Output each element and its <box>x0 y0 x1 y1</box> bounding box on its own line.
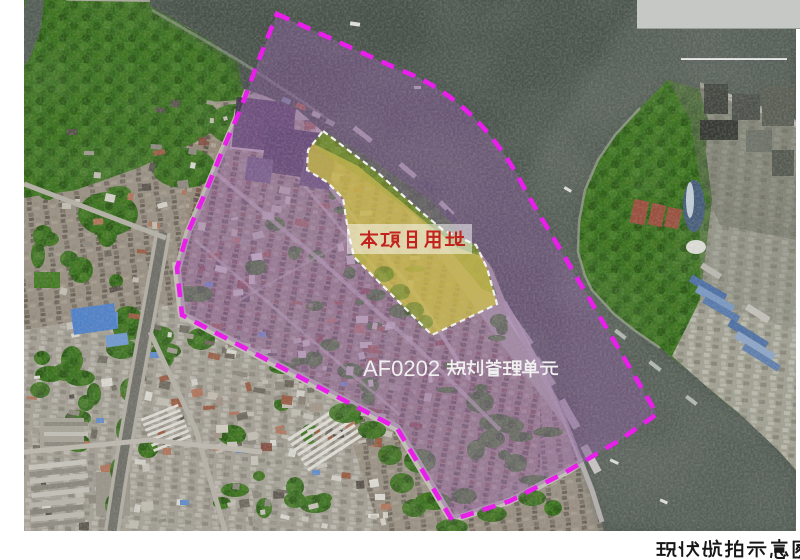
svg-text:AF0202: AF0202 <box>363 356 440 381</box>
